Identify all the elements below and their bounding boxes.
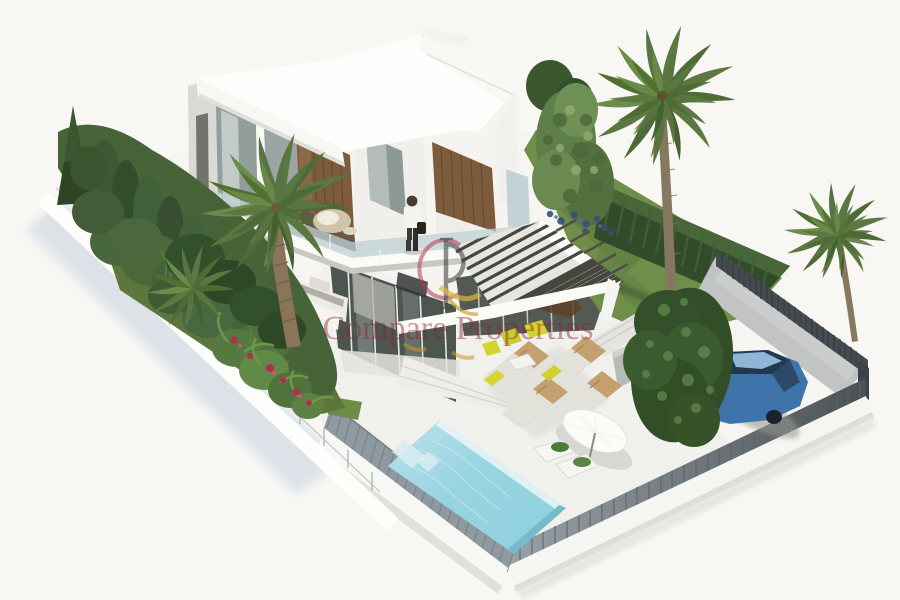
svg-text:Compare Properties: Compare Properties	[323, 310, 594, 347]
